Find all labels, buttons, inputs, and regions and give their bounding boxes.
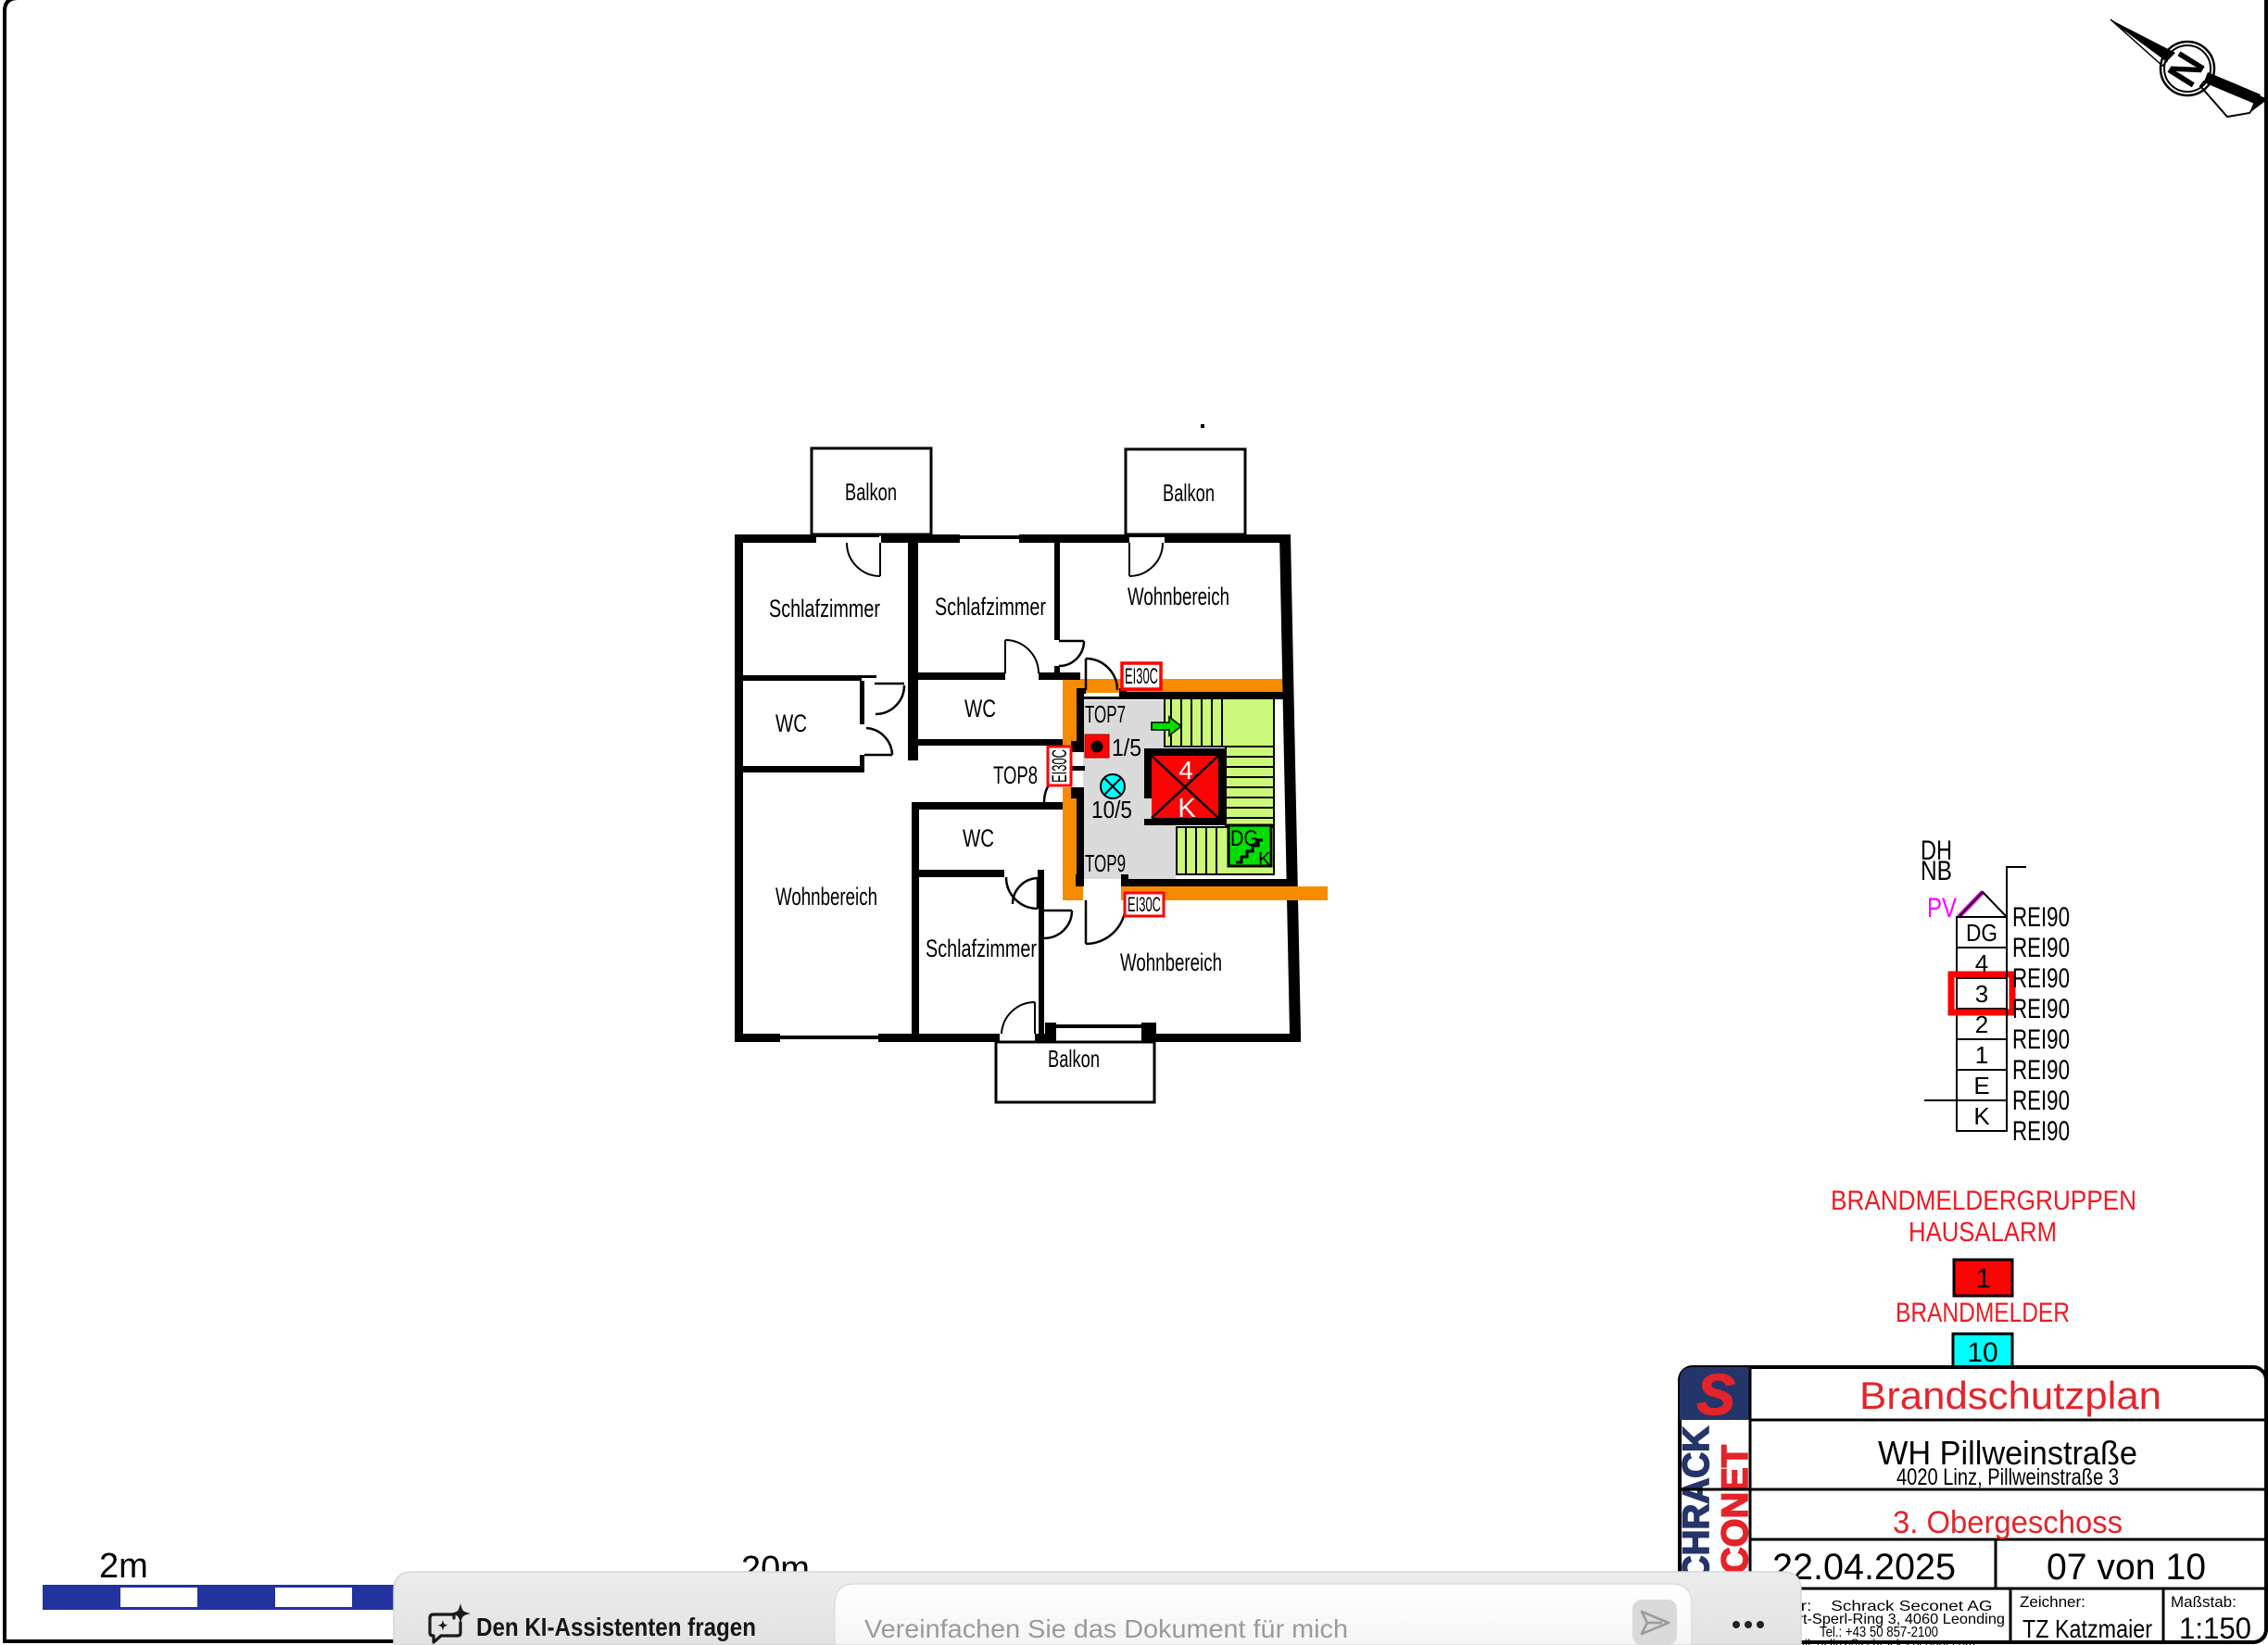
svg-text:Zeichner:: Zeichner:	[2020, 1593, 2085, 1611]
svg-text:Balkon: Balkon	[845, 478, 897, 506]
svg-text:REI90: REI90	[2012, 1116, 2070, 1147]
svg-text:TZ Katzmaier: TZ Katzmaier	[2022, 1614, 2152, 1643]
svg-text:REI90: REI90	[2012, 1086, 2070, 1116]
svg-text:WC: WC	[775, 709, 807, 737]
svg-text:PV: PV	[1927, 893, 1957, 923]
svg-text:Schlafzimmer: Schlafzimmer	[769, 595, 880, 622]
svg-text:4: 4	[1178, 756, 1193, 785]
svg-text:1: 1	[1976, 1263, 1992, 1294]
svg-text:REI90: REI90	[2012, 1024, 2070, 1055]
svg-text:Den KI-Assistenten fragen: Den KI-Assistenten fragen	[476, 1613, 756, 1641]
svg-text:REI90: REI90	[2012, 933, 2070, 963]
svg-text:K: K	[1258, 849, 1271, 870]
svg-text:3: 3	[1975, 980, 1988, 1008]
svg-text:K: K	[1973, 1102, 1990, 1130]
svg-text:DG: DG	[1966, 919, 1997, 947]
svg-text:EI30C: EI30C	[1128, 893, 1161, 916]
svg-text:Mail: gslinz@schrack-seconet.c: Mail: gslinz@schrack-seconet.com	[1788, 1638, 1975, 1645]
svg-text:TOP8: TOP8	[993, 761, 1038, 789]
svg-text:EI30C: EI30C	[1125, 664, 1158, 689]
svg-text:BRANDMELDERGRUPPEN: BRANDMELDERGRUPPEN	[1831, 1186, 2136, 1216]
svg-text:Schlafzimmer: Schlafzimmer	[935, 593, 1046, 621]
svg-text:S: S	[1696, 1363, 1734, 1427]
svg-text:Schlafzimmer: Schlafzimmer	[926, 935, 1037, 962]
svg-text:10: 10	[1967, 1337, 1997, 1368]
svg-text:1:150: 1:150	[2179, 1612, 2251, 1645]
svg-text:EI30C: EI30C	[1048, 749, 1071, 783]
svg-text:TOP9: TOP9	[1085, 849, 1126, 877]
svg-text:1: 1	[1975, 1041, 1988, 1069]
svg-text:REI90: REI90	[2012, 994, 2070, 1024]
svg-text:BRANDMELDER: BRANDMELDER	[1896, 1298, 2070, 1328]
svg-text:K: K	[1178, 794, 1196, 823]
svg-text:Wohnbereich: Wohnbereich	[1120, 948, 1222, 976]
svg-text:Balkon: Balkon	[1048, 1045, 1100, 1073]
svg-text:TOP7: TOP7	[1085, 700, 1126, 728]
svg-text:1/5: 1/5	[1112, 734, 1141, 761]
svg-text:REI90: REI90	[2012, 902, 2070, 933]
svg-text:Balkon: Balkon	[1163, 479, 1215, 507]
svg-text:WC: WC	[964, 695, 996, 722]
svg-text:HAUSALARM: HAUSALARM	[1909, 1217, 2057, 1248]
svg-text:WC: WC	[963, 824, 994, 852]
svg-text:2m: 2m	[99, 1547, 148, 1586]
svg-text:10/5: 10/5	[1091, 796, 1132, 823]
svg-text:REI90: REI90	[2012, 963, 2070, 994]
svg-text:3. Obergeschoss: 3. Obergeschoss	[1893, 1505, 2123, 1540]
svg-text:4020 Linz, Pillweinstraße 3: 4020 Linz, Pillweinstraße 3	[1896, 1464, 2119, 1490]
svg-text:Wohnbereich: Wohnbereich	[775, 883, 877, 910]
svg-text:NB: NB	[1921, 856, 1952, 886]
svg-text:Maßstab:: Maßstab:	[2171, 1593, 2236, 1611]
svg-text:Vereinfachen Sie das Dokument: Vereinfachen Sie das Dokument für mich	[864, 1614, 1348, 1643]
svg-text:Wohnbereich: Wohnbereich	[1128, 583, 1229, 610]
svg-text:E: E	[1973, 1072, 1989, 1099]
svg-text:07 von 10: 07 von 10	[2047, 1547, 2206, 1588]
svg-text:Brandschutzplan: Brandschutzplan	[1859, 1374, 2161, 1417]
svg-text:REI90: REI90	[2012, 1055, 2070, 1086]
